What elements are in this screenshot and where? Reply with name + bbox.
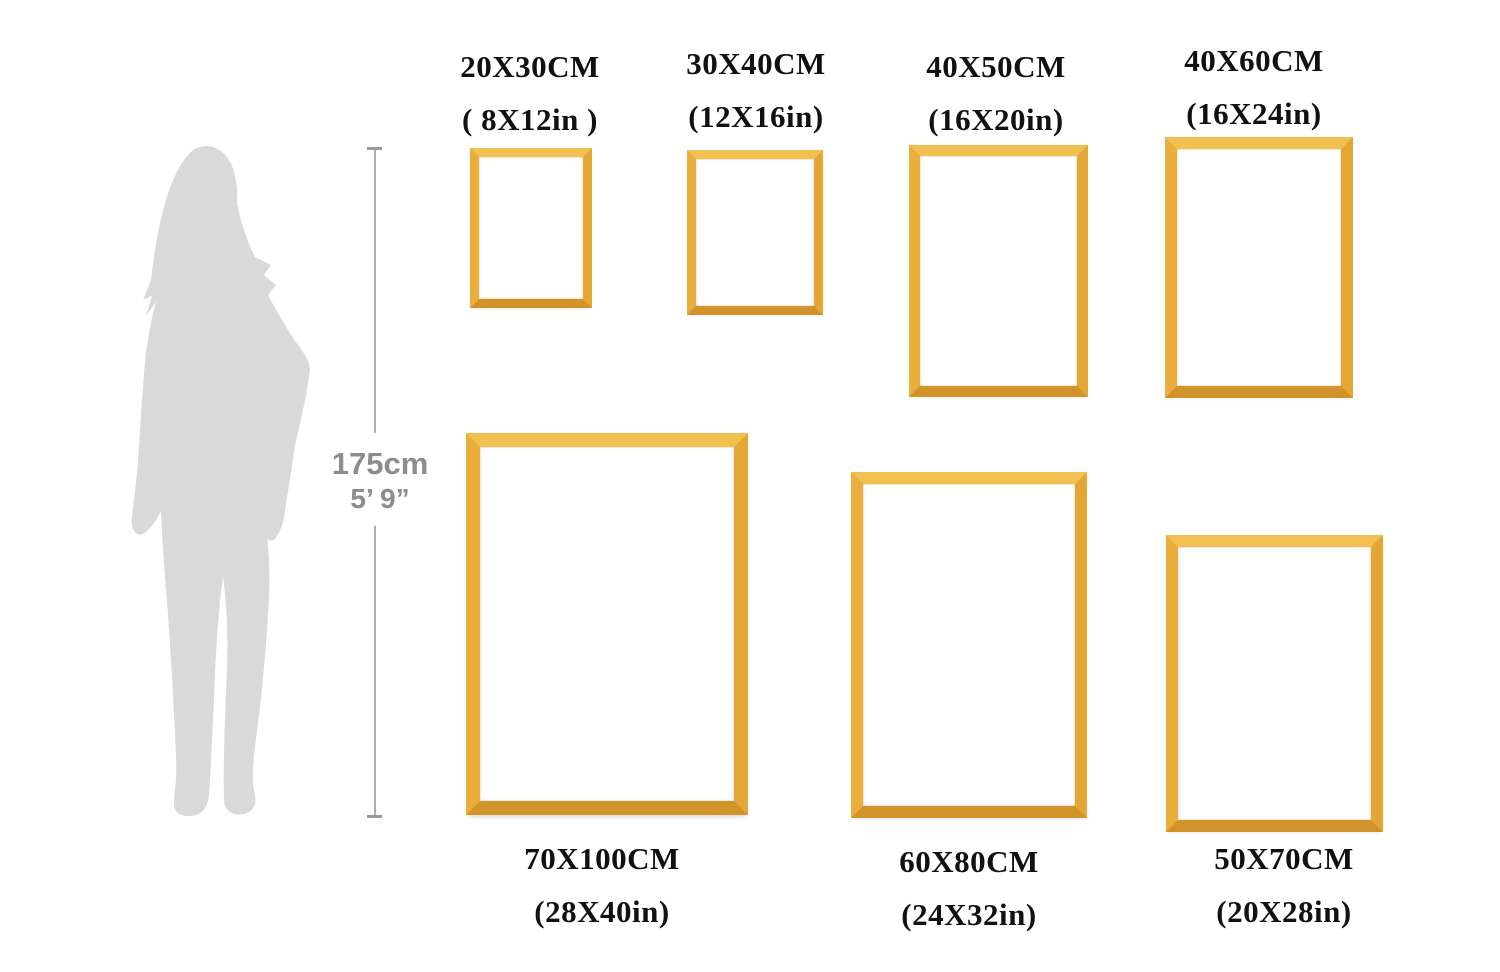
frame-label-60x80: 60X80CM (24X32in) [839, 835, 1099, 941]
frame-label-40x60-in: (16X24in) [1124, 87, 1384, 140]
height-cm: 175cm [298, 446, 462, 482]
woman-silhouette-shape [132, 146, 310, 816]
measure-line-lower [374, 526, 376, 816]
frame-60x80cm [851, 472, 1087, 818]
frame-40x60cm [1165, 137, 1353, 398]
frame-label-20x30: 20X30CM ( 8X12in ) [400, 40, 660, 146]
size-comparison-diagram: 175cm 5’ 9” 20X30CM ( 8X12in ) 30X40CM (… [0, 0, 1500, 972]
frame-label-70x100-cm: 70X100CM [472, 832, 732, 885]
frame-70x100cm [466, 433, 748, 815]
frame-label-50x70-in: (20X28in) [1154, 885, 1414, 938]
frame-label-30x40-in: (12X16in) [626, 90, 886, 143]
measure-line-bottom-cap [367, 815, 382, 818]
frame-40x50cm [909, 145, 1088, 397]
frame-30x40cm [687, 150, 823, 315]
frame-label-60x80-cm: 60X80CM [839, 835, 1099, 888]
frame-label-20x30-in: ( 8X12in ) [400, 93, 660, 146]
frame-label-50x70: 50X70CM (20X28in) [1154, 832, 1414, 938]
frame-label-60x80-in: (24X32in) [839, 888, 1099, 941]
frame-label-70x100: 70X100CM (28X40in) [472, 832, 732, 938]
frame-label-20x30-cm: 20X30CM [400, 40, 660, 93]
frame-label-30x40-cm: 30X40CM [626, 37, 886, 90]
height-label: 175cm 5’ 9” [298, 446, 462, 516]
frame-label-40x50-in: (16X20in) [866, 93, 1126, 146]
frame-50x70cm [1166, 535, 1383, 832]
height-ft: 5’ 9” [298, 482, 462, 516]
frame-20x30cm [470, 148, 592, 308]
frame-label-40x60-cm: 40X60CM [1124, 34, 1384, 87]
frame-label-50x70-cm: 50X70CM [1154, 832, 1414, 885]
measure-line-upper [374, 150, 376, 433]
frame-label-30x40: 30X40CM (12X16in) [626, 37, 886, 143]
woman-silhouette [118, 144, 318, 820]
frame-label-70x100-in: (28X40in) [472, 885, 732, 938]
frame-label-40x60: 40X60CM (16X24in) [1124, 34, 1384, 140]
frame-label-40x50: 40X50CM (16X20in) [866, 40, 1126, 146]
frame-label-40x50-cm: 40X50CM [866, 40, 1126, 93]
